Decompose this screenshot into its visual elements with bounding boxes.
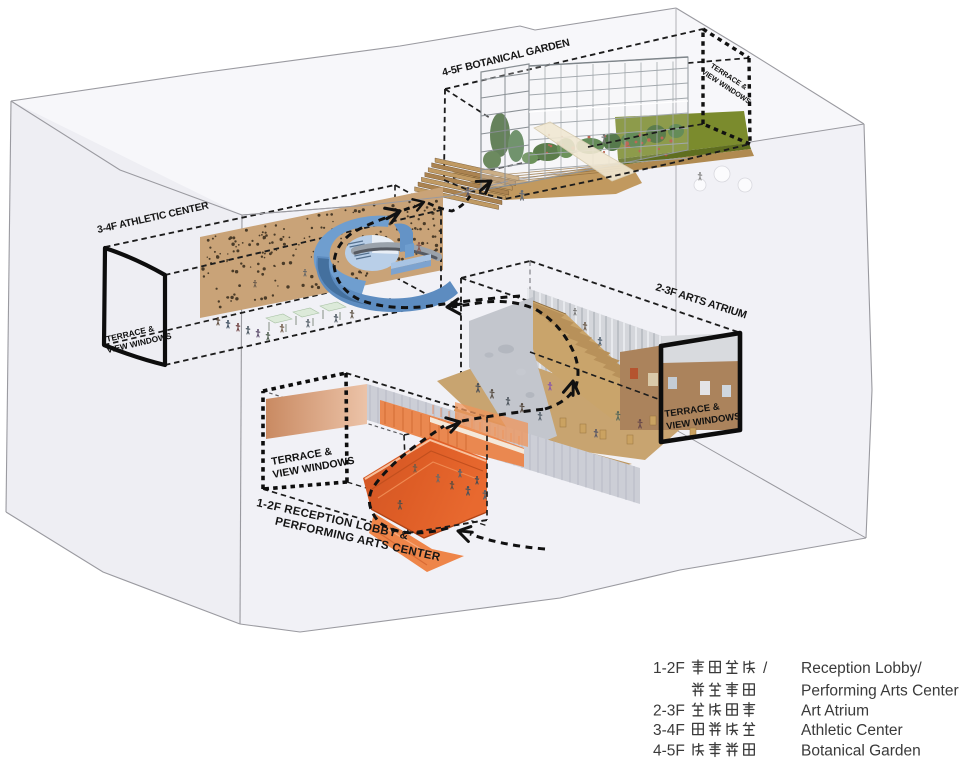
svg-text:Art Atrium: Art Atrium [801, 703, 869, 720]
svg-text:4-5F: 4-5F [653, 743, 685, 760]
svg-text:Reception Lobby/: Reception Lobby/ [801, 660, 922, 677]
svg-text:Botanical Garden: Botanical Garden [801, 743, 921, 760]
svg-text:3-4F: 3-4F [653, 722, 685, 739]
svg-text:Performing Arts Center: Performing Arts Center [801, 683, 959, 700]
svg-text:Athletic Center: Athletic Center [801, 722, 903, 739]
svg-text:1-2F: 1-2F [653, 660, 685, 677]
svg-text:/: / [763, 660, 768, 677]
svg-text:2-3F: 2-3F [653, 703, 685, 720]
